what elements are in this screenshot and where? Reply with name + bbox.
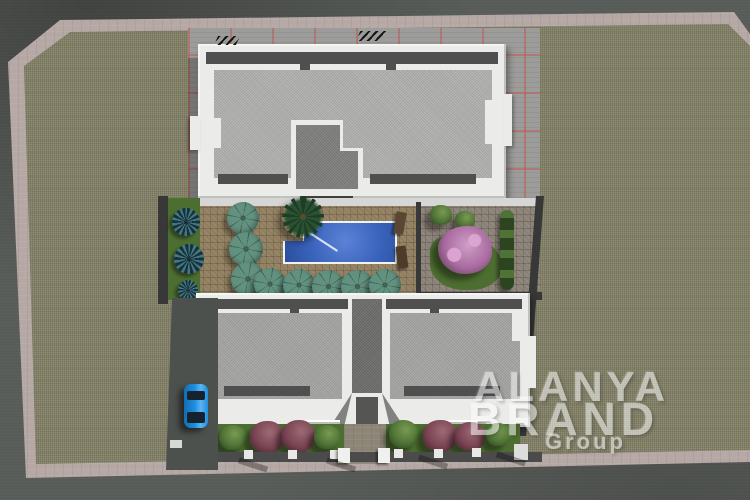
front-wall-pillar-7 xyxy=(472,448,481,457)
site-render: ALANYA BRAND Group xyxy=(0,0,750,500)
front-shrub-5 xyxy=(389,420,418,448)
flowering-tree xyxy=(438,226,492,274)
agave-plant-1 xyxy=(172,208,200,236)
east-bush-1 xyxy=(430,205,452,225)
front-wall-pillar-3 xyxy=(288,450,297,459)
front-shrub-2 xyxy=(250,421,284,453)
west-courtyard-wall xyxy=(158,196,168,304)
watermark-line-3: Group xyxy=(545,431,626,453)
front-gate-pillar-east xyxy=(378,448,390,463)
front-wall-pillar-5 xyxy=(394,449,403,458)
front-shrub-6 xyxy=(423,420,457,452)
block-a-walkway-band-se xyxy=(370,174,476,184)
front-shrub-1 xyxy=(219,425,246,450)
east-garden-wall-west xyxy=(416,202,421,294)
car-rear-window xyxy=(187,412,205,423)
block-a-step-west xyxy=(190,116,200,150)
front-shrub-4 xyxy=(314,425,340,449)
bird-marks-2 xyxy=(356,31,387,41)
car-windshield xyxy=(187,391,205,400)
block-a-walkway-band-sw xyxy=(218,174,288,184)
bird-marks-1 xyxy=(214,36,240,45)
east-hedge-row xyxy=(500,210,514,290)
block-b-core-roof xyxy=(352,299,382,393)
agave-plant-3 xyxy=(178,280,198,300)
agave-plant-2 xyxy=(174,244,204,274)
palm-tree xyxy=(282,196,324,238)
front-wall-pillar-6 xyxy=(434,449,443,458)
block-a-walkway-band xyxy=(206,52,498,64)
front-shrub-3 xyxy=(282,420,315,452)
front-wall-pillar-2 xyxy=(244,450,253,459)
umbrella-1 xyxy=(227,202,259,234)
block-a-step-east xyxy=(504,94,512,146)
block-b-walkway-band-sw xyxy=(224,386,310,396)
umbrella-2 xyxy=(229,232,263,266)
driveway-curb xyxy=(170,440,182,448)
